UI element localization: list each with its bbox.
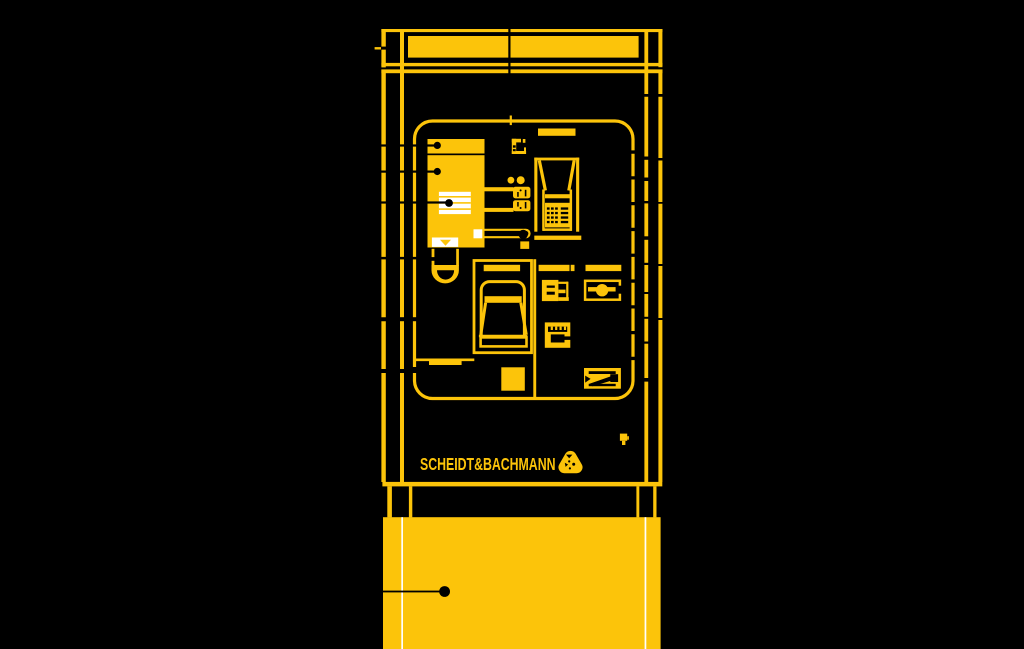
svg-text:SCHEIDT&BACHMANN: SCHEIDT&BACHMANN [420, 454, 556, 474]
